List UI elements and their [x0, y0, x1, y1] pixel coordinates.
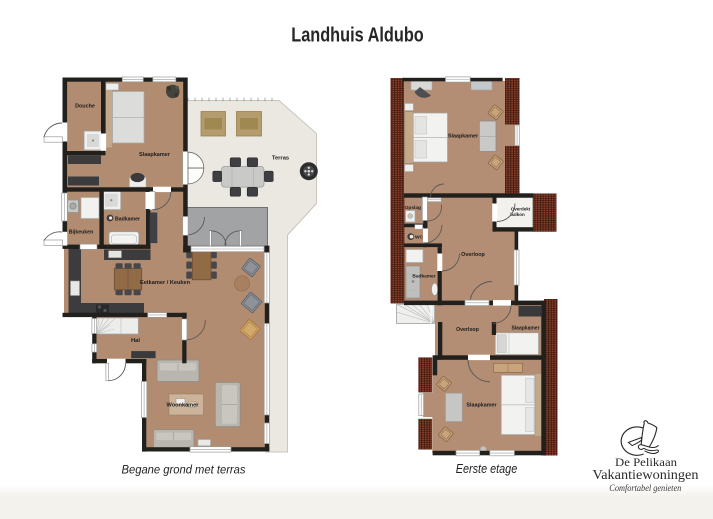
svg-text:Overloop: Overloop [461, 252, 485, 258]
svg-text:Douche: Douche [75, 103, 95, 109]
svg-text:Badkamer: Badkamer [115, 217, 140, 223]
svg-text:WC: WC [415, 235, 424, 241]
svg-text:Woonkamer: Woonkamer [167, 402, 200, 408]
svg-text:Slaapkamer: Slaapkamer [511, 326, 539, 332]
svg-text:Opslag: Opslag [405, 205, 421, 211]
svg-text:Badkamer: Badkamer [412, 274, 435, 280]
svg-text:Begane grond met terras: Begane grond met terras [122, 465, 246, 477]
svg-text:Terras: Terras [272, 155, 289, 161]
svg-text:Landhuis Aldubo: Landhuis Aldubo [291, 23, 424, 46]
svg-text:Comfortabel genieten: Comfortabel genieten [609, 483, 681, 494]
svg-text:Bijkeuken: Bijkeuken [69, 229, 94, 235]
svg-text:Overloop: Overloop [456, 327, 479, 333]
svg-text:Vakantiewoningen: Vakantiewoningen [593, 467, 699, 482]
svg-text:Slaapkamer: Slaapkamer [448, 134, 479, 140]
svg-text:Slaapkamer: Slaapkamer [466, 402, 497, 408]
svg-text:Hal: Hal [131, 338, 140, 344]
svg-text:Eetkamer / Keuken: Eetkamer / Keuken [140, 280, 191, 286]
svg-text:Slaapkamer: Slaapkamer [139, 152, 171, 158]
svg-text:Eerste etage: Eerste etage [456, 461, 518, 476]
